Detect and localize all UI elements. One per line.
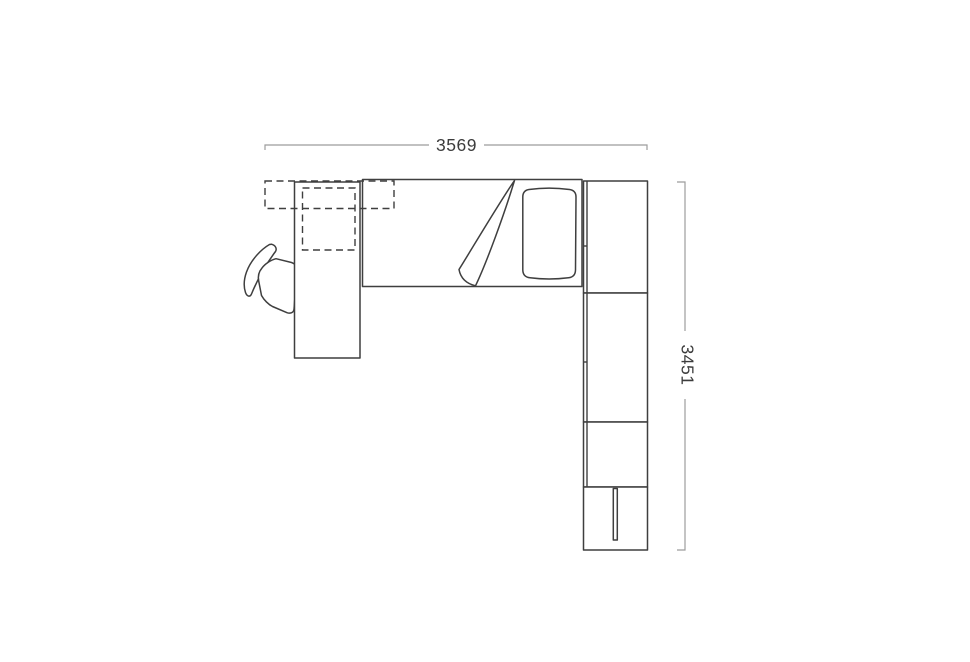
desk-chair [244, 244, 297, 313]
chair-seat [258, 259, 297, 313]
floor-plan-drawing: 3569 3451 [0, 0, 970, 662]
height-dimension: 3451 [677, 182, 697, 550]
wardrobe-section-3 [584, 422, 648, 487]
width-dimension: 3569 [265, 135, 647, 155]
bed [363, 180, 583, 287]
width-dimension-label: 3569 [436, 135, 477, 155]
height-dimension-label: 3451 [677, 345, 697, 386]
wardrobe-section-2 [584, 293, 648, 422]
floor-plan-canvas: 3569 3451 [0, 0, 970, 662]
drawer-handle [613, 489, 617, 541]
wardrobe [584, 181, 648, 550]
pillow [523, 188, 576, 279]
wardrobe-section-1 [584, 181, 648, 293]
